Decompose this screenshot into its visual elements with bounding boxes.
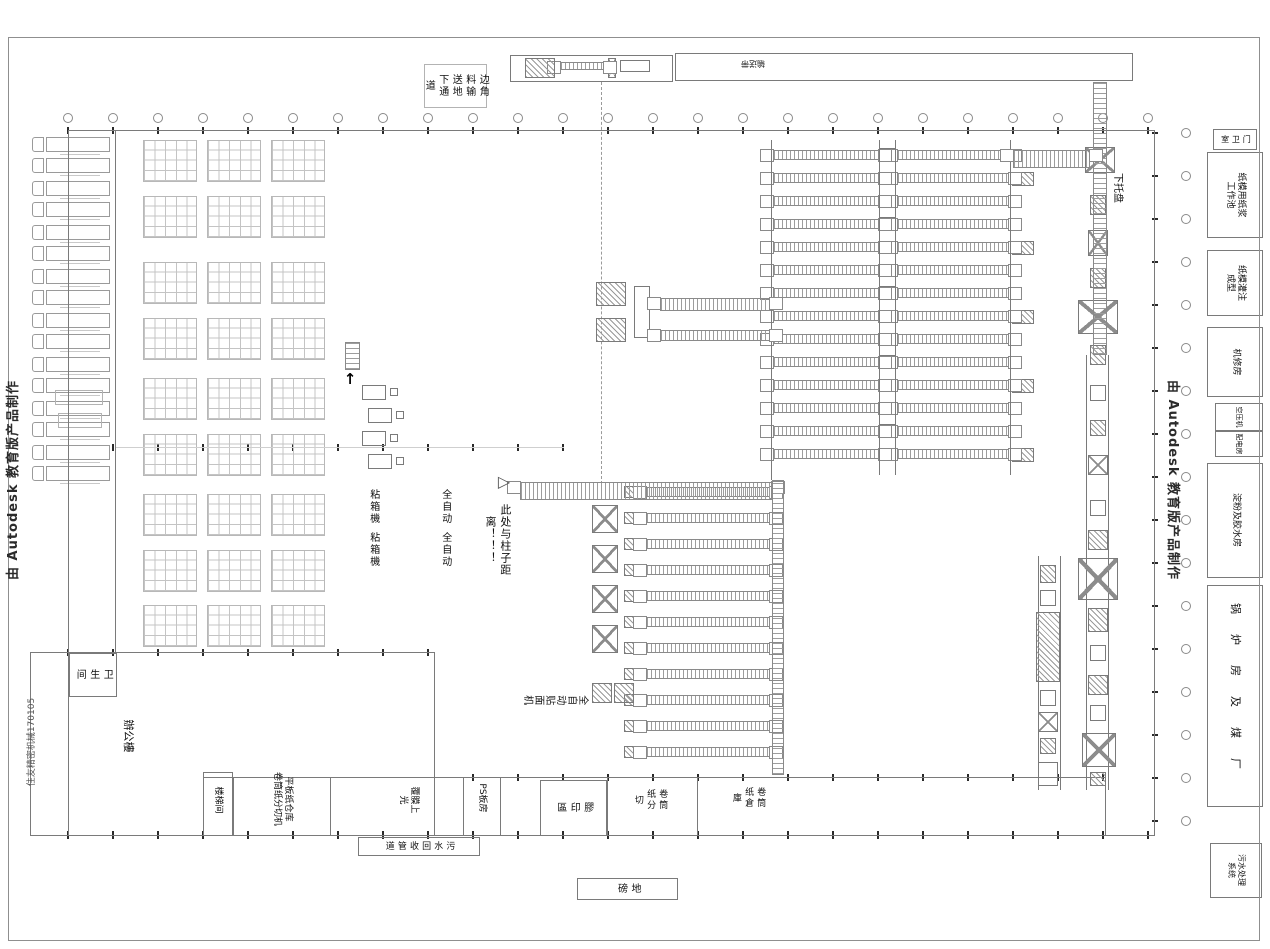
- gate-house-label-wrap: 门卫室: [1213, 129, 1257, 150]
- column-note: 此处与柱子距离！！！: [482, 500, 512, 580]
- up-arrow-icon: ↑: [342, 368, 358, 390]
- column-note-wrap: 此处与柱子距离！！！: [480, 498, 514, 582]
- starch-glue-room-label: 淀粉及胶水房: [1229, 490, 1241, 550]
- molding-room-label: 纸模灌注 成型: [1222, 260, 1248, 306]
- gluer2-label-left: 粘箱機: [366, 531, 380, 569]
- ps-room-label: PS板房: [475, 776, 487, 820]
- sewage-treatment-label: 污水处理 系统: [1224, 850, 1248, 890]
- sewage-pipe-label-wrap: 污水回收管道: [358, 837, 480, 856]
- stairwell-label: 楼梯间: [211, 780, 223, 820]
- laminator-label-wrap: 全自动贴面机: [521, 690, 591, 706]
- machine-repair-label: 机修房: [1229, 345, 1241, 379]
- flat-paper-warehouse-label: 平板纸仓库 卷筒纸分切机: [269, 764, 295, 834]
- watermark-right: 由 Autodesk 教育版产品制作: [1164, 370, 1180, 590]
- roll-slitting-label-wrap: 卷筒纸分切: [615, 780, 685, 820]
- boiler-coal-label: 锅炉房及煤厂: [1228, 591, 1242, 801]
- gluer2-col-left-wrap: 粘箱機: [365, 530, 381, 570]
- gluer2-col-right-wrap: 全自动: [437, 530, 453, 570]
- power-room-label: 配电房: [1234, 429, 1244, 459]
- pulp-pool-label: 纸模用纸浆 工作池: [1222, 165, 1248, 225]
- scrap-tunnel-label: 边角料输送地下通道: [422, 73, 490, 99]
- laminator-label: 全自动贴面机: [522, 691, 590, 705]
- office-label: 辦公樓: [121, 706, 135, 766]
- roll-warehouse-label: 卷筒纸倉庫: [730, 785, 766, 811]
- weighbridge-label: 地磅: [614, 883, 641, 895]
- conveyor-strip-label: 输送带: [733, 57, 773, 69]
- air-compressor-label: 空压机: [1234, 402, 1244, 432]
- toilet-label-wrap: 卫生间: [69, 653, 117, 697]
- scrap-tunnel-label-wrap: 边角料输送地下通道: [424, 64, 487, 108]
- offset-print-label-wrap: 膠印區: [540, 780, 607, 836]
- cad-floor-plan: 由 Autodesk 教育版产品制作 由 Autodesk 教育版产品制作 住友…: [0, 0, 1270, 949]
- offset-print-label: 膠印區: [553, 802, 594, 815]
- drawing-number: 住友精密机械170105: [27, 696, 39, 788]
- weighbridge-label-wrap: 地磅: [577, 878, 678, 900]
- watermark-left: 由 Autodesk 教育版产品制作: [6, 370, 22, 590]
- roll-slitting-label: 卷筒纸分切: [632, 787, 668, 813]
- triangle-marker-icon: ▷: [494, 472, 514, 492]
- gate-house-label: 门卫室: [1219, 135, 1251, 145]
- gluer1-col-left-wrap: 粘箱機: [365, 487, 381, 527]
- gluer1-label-left: 粘箱機: [366, 488, 380, 526]
- gluer1-col-right-wrap: 全自动: [437, 487, 453, 527]
- coating-room-label: 覆膜上光: [395, 785, 421, 815]
- gluer1-label-right: 全自动: [438, 488, 452, 526]
- toilet-label: 卫生间: [73, 669, 114, 682]
- sewage-pipe-label: 污水回收管道: [383, 841, 456, 853]
- roll-warehouse-label-wrap: 卷筒纸倉庫: [712, 778, 784, 818]
- gluer2-label-right: 全自动: [438, 531, 452, 569]
- pallet-down-label: 下托盘: [1111, 168, 1123, 208]
